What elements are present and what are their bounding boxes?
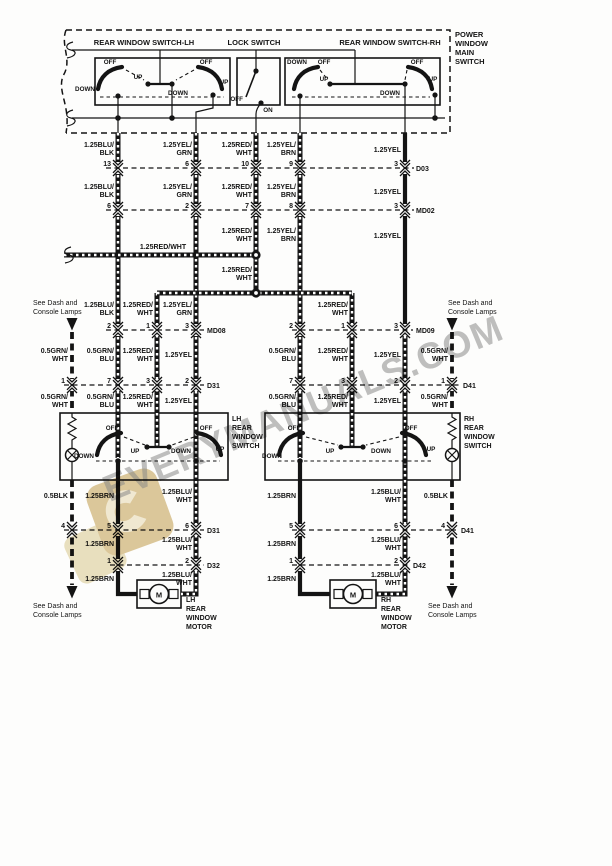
to-dash-lamps-arrow bbox=[447, 586, 458, 599]
from-dash-lamps-arrow bbox=[67, 318, 78, 331]
rear-window-switch-lh-label: REAR WINDOW SWITCH-LH bbox=[94, 38, 194, 47]
pin-number: 2 bbox=[394, 558, 398, 565]
pin-number: 7 bbox=[245, 203, 249, 210]
wire-label: 1.25BRN bbox=[267, 576, 296, 583]
wire-label: 1.25YEL bbox=[165, 398, 193, 405]
to-dash-lamps-arrow bbox=[67, 586, 78, 599]
pin-number: 2 bbox=[289, 323, 293, 330]
off-label: OFF bbox=[200, 59, 213, 66]
pin-number: 10 bbox=[241, 161, 249, 168]
wire-label: 1.25RED/WHT bbox=[222, 184, 253, 199]
wire-label: 1.25RED/WHT bbox=[222, 267, 253, 282]
pin-number: 7 bbox=[289, 378, 293, 385]
pin-number: 6 bbox=[107, 203, 111, 210]
wire-label: 1.25BRN bbox=[267, 493, 296, 500]
pin-number: 6 bbox=[185, 523, 189, 530]
wire-label: 0.5GRN/BLU bbox=[269, 348, 296, 363]
lh-rear-window-motor-label: LHREARWINDOWMOTOR bbox=[186, 597, 217, 631]
lock-switch-label: LOCK SWITCH bbox=[228, 38, 281, 47]
wire-label: 1.25BRN bbox=[267, 541, 296, 548]
wire-label: 1.25RED/WHT bbox=[318, 348, 349, 363]
pin-number: 6 bbox=[394, 523, 398, 530]
wire-label: 1.25BLU/BLK bbox=[84, 302, 114, 317]
wire-label: 1.25RED/WHT bbox=[123, 348, 154, 363]
pin-number: 2 bbox=[185, 378, 189, 385]
wire-label: 1.25YEL/BRN bbox=[267, 142, 296, 157]
pin-number: 3 bbox=[394, 203, 398, 210]
see-dash-note: See Dash andConsole Lamps bbox=[428, 603, 477, 619]
up-label: UP bbox=[320, 76, 329, 83]
down-label: DOWN bbox=[380, 90, 400, 97]
pin-number: 1 bbox=[61, 378, 65, 385]
wire-label: 1.25BLU/WHT bbox=[371, 489, 402, 504]
wire-label: 0.5GRN/BLU bbox=[87, 394, 114, 409]
wire-label: 1.25RED/WHT bbox=[123, 394, 154, 409]
up-label: UP bbox=[220, 79, 229, 86]
down-label: DOWN bbox=[287, 59, 307, 66]
up-label: UP bbox=[134, 74, 143, 81]
rh-rear-window-motor-label: RHREARWINDOWMOTOR bbox=[381, 597, 412, 631]
connector-name: D41 bbox=[463, 383, 476, 390]
connector-name: D41 bbox=[461, 528, 474, 535]
manual-page: M M REAR WINDOW SWITCH-LH LOCK SWITCH RE… bbox=[0, 0, 612, 866]
pin-number: 2 bbox=[107, 323, 111, 330]
pin-number: 6 bbox=[185, 161, 189, 168]
pin-number: 7 bbox=[107, 378, 111, 385]
connector-name: D42 bbox=[413, 563, 426, 570]
wire-label: 1.25BLU/WHT bbox=[162, 489, 193, 504]
up-label: UP bbox=[427, 446, 436, 453]
connector-name: D32 bbox=[207, 563, 220, 570]
pin-number: 1 bbox=[289, 558, 293, 565]
wiring-diagram: M M REAR WINDOW SWITCH-LH LOCK SWITCH RE… bbox=[0, 0, 612, 866]
wire-label: 1.25BLU/BLK bbox=[84, 142, 114, 157]
motor-m-label: M bbox=[350, 591, 356, 600]
wire-label: 1.25RED/WHT bbox=[123, 302, 154, 317]
pin-number: 3 bbox=[185, 323, 189, 330]
pin-number: 2 bbox=[185, 203, 189, 210]
title-block: POWERWINDOWMAINSWITCH bbox=[455, 30, 489, 66]
off-label: OFF bbox=[405, 425, 418, 432]
down-label: DOWN bbox=[74, 453, 94, 460]
lh-motor-symbol: M bbox=[140, 585, 178, 604]
see-dash-note: See Dash andConsole Lamps bbox=[33, 300, 82, 316]
down-label: DOWN bbox=[75, 86, 95, 93]
wire-label: 1.25BLU/WHT bbox=[371, 537, 402, 552]
wire-label: 1.25YEL/BRN bbox=[267, 228, 296, 243]
pin-number: 5 bbox=[289, 523, 293, 530]
pin-number: 1 bbox=[341, 323, 345, 330]
pin-number: 3 bbox=[394, 161, 398, 168]
wire-label: 1.25YEL/BRN bbox=[267, 184, 296, 199]
wire-label: 0.5GRN/WHT bbox=[41, 348, 69, 363]
main-switch-internals bbox=[67, 42, 445, 133]
wire-label: 1.25YEL bbox=[374, 233, 402, 240]
pin-number: 8 bbox=[289, 203, 293, 210]
wire-label: 1.25RED/WHT bbox=[140, 244, 187, 251]
connector-name: D31 bbox=[207, 383, 220, 390]
rear-window-switch-rh-label: REAR WINDOW SWITCH-RH bbox=[339, 38, 440, 47]
wire-label: 1.25RED/WHT bbox=[222, 142, 253, 157]
motor-m-label: M bbox=[156, 591, 162, 600]
wire-label: 1.25YEL bbox=[374, 189, 402, 196]
pin-number: 3 bbox=[146, 378, 150, 385]
pin-number: 4 bbox=[61, 523, 65, 530]
off-label: OFF bbox=[230, 96, 243, 103]
wire-label: 0.5BLK bbox=[44, 493, 68, 500]
on-label: ON bbox=[263, 107, 273, 114]
rh-rear-window-switch-label: RHREARWINDOWSWITCH bbox=[464, 416, 495, 450]
wire-label: 1.25YEL bbox=[374, 147, 402, 154]
wire-label: 1.25RED/WHT bbox=[222, 228, 253, 243]
wire-label: 1.25YEL/GRN bbox=[163, 184, 192, 199]
pin-number: 4 bbox=[441, 523, 445, 530]
wire-label: 1.25YEL/GRN bbox=[163, 142, 192, 157]
down-label: DOWN bbox=[168, 90, 188, 97]
down-label: DOWN bbox=[262, 453, 282, 460]
wire-label: 0.5GRN/WHT bbox=[421, 394, 449, 409]
connector-name: D03 bbox=[416, 166, 429, 173]
pin-number: 1 bbox=[146, 323, 150, 330]
off-label: OFF bbox=[106, 425, 119, 432]
pin-number: 2 bbox=[185, 558, 189, 565]
pin-number: 13 bbox=[103, 161, 111, 168]
pin-number: 1 bbox=[441, 378, 445, 385]
pin-number: 9 bbox=[289, 161, 293, 168]
wire-label: 0.5BLK bbox=[424, 493, 448, 500]
pin-number: 3 bbox=[394, 323, 398, 330]
down-label: DOWN bbox=[371, 448, 391, 455]
wire-label: 0.5GRN/WHT bbox=[41, 394, 69, 409]
off-label: OFF bbox=[318, 59, 331, 66]
connector-name: MD02 bbox=[416, 208, 435, 215]
off-label: OFF bbox=[104, 59, 117, 66]
off-label: OFF bbox=[411, 59, 424, 66]
wire-label: 1.25BLU/WHT bbox=[162, 537, 193, 552]
see-dash-note: See Dash andConsole Lamps bbox=[33, 603, 82, 619]
wire-label: 1.25RED/WHT bbox=[318, 302, 349, 317]
up-label: UP bbox=[429, 76, 438, 83]
wire-label: 1.25YEL/GRN bbox=[163, 302, 192, 317]
wire-label: 0.5GRN/BLU bbox=[87, 348, 114, 363]
up-label: UP bbox=[326, 448, 335, 455]
wire-label: 1.25YEL bbox=[165, 352, 193, 359]
connector-name: MD08 bbox=[207, 328, 226, 335]
connector-name: D31 bbox=[207, 528, 220, 535]
wire-label: 1.25BLU/BLK bbox=[84, 184, 114, 199]
lock-switch bbox=[246, 50, 264, 133]
rh-motor-symbol: M bbox=[334, 585, 372, 604]
